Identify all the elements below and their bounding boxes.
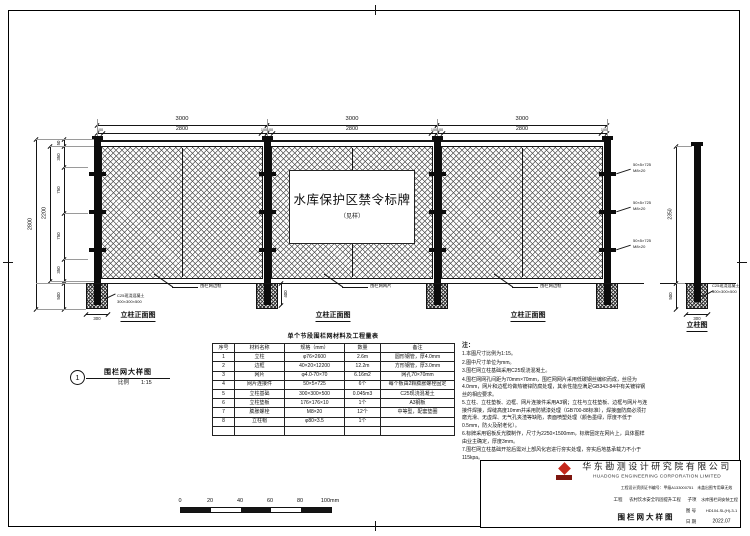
connector-tab xyxy=(599,248,616,252)
subitem-label: 子项 xyxy=(688,497,697,502)
scale-bar-label: 20 xyxy=(207,499,213,505)
table-cell: 40×20×12200 xyxy=(285,362,345,371)
fence-post xyxy=(94,138,101,305)
table-cell: 6个 xyxy=(345,380,381,389)
date-label: 日 期 xyxy=(686,520,696,525)
table-header-cell: 材料名称 xyxy=(235,344,285,353)
table-cell xyxy=(381,426,455,435)
scale-bar-segment xyxy=(211,508,241,512)
post-cap xyxy=(432,136,443,140)
connector-tab xyxy=(89,248,106,252)
table-row: 8立柱帽φ80×3.51个 xyxy=(213,417,455,426)
dim-foundation xyxy=(64,283,65,309)
table-row: 6立柱垫板176×176×101个A3钢板 xyxy=(213,399,455,408)
table-cell xyxy=(235,426,285,435)
materials-table-grid: 序号材料名称规格（mm）数量备注1立柱φ76×26002.6m圆形钢管，厚4.0… xyxy=(212,343,455,436)
graphic-scale-bar: 020406080100mm xyxy=(170,497,350,517)
sign-title: 水库保护区禁令标牌 xyxy=(293,194,410,207)
table-cell xyxy=(285,426,345,435)
table-cell: 1个 xyxy=(345,399,381,408)
company-logo-band xyxy=(556,475,572,480)
centering-mark-left xyxy=(3,262,13,263)
table-row: 7膨胀螺栓M8×2012个中等型，配套垫圈 xyxy=(213,408,455,417)
connector-callout-line2: M8×20 xyxy=(633,207,645,211)
scale-bar-segment xyxy=(181,508,211,512)
dim-span-3000: 3000 xyxy=(516,117,529,123)
dim-foundation-300: 300 xyxy=(93,317,100,321)
drawing-no-value: HD104-SL(H)-3-1 xyxy=(706,509,737,513)
single-post xyxy=(694,145,701,302)
table-cell: 网片连接件 xyxy=(235,380,285,389)
table-cell: 膨胀螺栓 xyxy=(235,408,285,417)
table-cell: 4 xyxy=(213,380,235,389)
post-front-view-label: 立柱正面图 xyxy=(316,312,351,322)
scale-bar-segment xyxy=(271,508,301,512)
single-foundation-callout-line2: 300×300×500 xyxy=(712,290,737,294)
dim-panel-2800: 2800 xyxy=(176,127,188,133)
scale-bar-segment xyxy=(241,508,271,512)
table-cell: A3钢板 xyxy=(381,399,455,408)
scale-bar-segment xyxy=(301,508,331,512)
connector-tab xyxy=(599,210,616,214)
table-cell: 5 xyxy=(213,389,235,398)
dim-single-height xyxy=(676,146,677,283)
table-row: 1立柱φ76×26002.6m圆形钢管，厚4.0mm xyxy=(213,353,455,362)
witness-line xyxy=(676,283,685,284)
table-cell: C25现浇混凝土 xyxy=(381,389,455,398)
callout-leader xyxy=(172,287,198,288)
dim-height-2200: 2200 xyxy=(42,207,48,219)
connector-tab xyxy=(429,248,446,252)
dim-panel-2800: 2800 xyxy=(346,127,358,133)
table-cell: 网片 xyxy=(235,371,285,380)
dim-single-500: 500 xyxy=(669,292,673,299)
witness-line xyxy=(676,146,692,147)
centering-mark-top xyxy=(375,5,376,15)
dim-span-3000: 3000 xyxy=(346,117,359,123)
table-cell: 边框 xyxy=(235,362,285,371)
project-label: 工程 xyxy=(614,497,623,502)
table-cell: 1个 xyxy=(345,417,381,426)
post-cap xyxy=(602,136,613,140)
table-row xyxy=(213,426,455,435)
foundation-callout-line1: C25现浇混凝土 xyxy=(117,294,144,298)
table-cell: 7 xyxy=(213,408,235,417)
connector-tab xyxy=(89,210,106,214)
connector-tab xyxy=(599,172,616,176)
fence-post xyxy=(434,138,441,305)
witness-line xyxy=(50,146,94,147)
table-cell: 立柱帽 xyxy=(235,417,285,426)
centering-mark-bottom xyxy=(375,521,376,531)
title-block-drawing-title: 围栏网大样图 xyxy=(618,513,675,521)
table-header-cell: 数量 xyxy=(345,344,381,353)
note-item: 3.围栏网立柱基础采用C25现浇混凝土。 xyxy=(462,368,648,376)
detail-ref-scale-value: 1:15 xyxy=(141,381,152,387)
connector-tab xyxy=(259,172,276,176)
table-cell: 50×5×725 xyxy=(285,380,345,389)
fence-post xyxy=(264,138,271,305)
table-cell: 每个板由2颗膨胀螺栓固定 xyxy=(381,380,455,389)
table-cell: 立柱 xyxy=(235,353,285,362)
dim-line-panel xyxy=(437,133,607,134)
table-cell: 立柱基础 xyxy=(235,389,285,398)
dim-line-mesh xyxy=(50,146,51,281)
dim-embed xyxy=(281,283,282,305)
table-cell: M8×20 xyxy=(285,408,345,417)
dim-segment: 50 xyxy=(57,140,61,145)
table-cell xyxy=(381,417,455,426)
table-cell: φ4.0-70×70 xyxy=(285,371,345,380)
table-cell: 2 xyxy=(213,362,235,371)
table-row: 2边框40×20×1220012.2m方形钢管，厚3.0mm xyxy=(213,362,455,371)
callout-leader xyxy=(342,287,368,288)
post-front-view-label: 立柱正面图 xyxy=(511,312,546,322)
table-cell xyxy=(345,426,381,435)
materials-table: 序号材料名称规格（mm）数量备注1立柱φ76×26002.6m圆形钢管，厚4.0… xyxy=(212,343,455,436)
table-header-cell: 规格（mm） xyxy=(285,344,345,353)
table-cell: 12个 xyxy=(345,408,381,417)
connector-tab xyxy=(429,172,446,176)
dim-embed-400: 400 xyxy=(283,290,287,297)
scale-bar-label: 60 xyxy=(267,499,273,505)
table-cell: 6 xyxy=(213,399,235,408)
connector-callout-line1: 50×5×725 xyxy=(633,163,651,167)
panel-center-divider xyxy=(522,148,523,277)
table-cell: 立柱垫板 xyxy=(235,399,285,408)
ground-line xyxy=(52,283,644,284)
note-item: 4.围栏网网孔间距为70mm×70mm，围栏网网片采用低碳钢丝编织而成，丝径为4… xyxy=(462,377,648,400)
dim-line-panel xyxy=(267,133,437,134)
table-cell: 8 xyxy=(213,417,235,426)
single-post-view-label: 立柱图 xyxy=(687,322,708,332)
table-cell: 0.045m3 xyxy=(345,389,381,398)
scale-bar-label: 40 xyxy=(237,499,243,505)
post-front-view-label: 立柱正面图 xyxy=(121,312,156,322)
centering-mark-right xyxy=(737,262,747,263)
table-cell: 12.2m xyxy=(345,362,381,371)
witness-line xyxy=(36,139,94,140)
connector-callout-line2: M8×20 xyxy=(633,245,645,249)
dim-foundation-500: 500 xyxy=(57,292,61,299)
dim-segment: 350 xyxy=(57,153,61,160)
connector-tab xyxy=(89,172,106,176)
table-cell: 6.16m2 xyxy=(345,371,381,380)
detail-ref-bubble: 1 xyxy=(70,370,85,385)
table-row: 3网片φ4.0-70×706.16m2网孔70×70mm xyxy=(213,371,455,380)
foundation-callout-line2: 300×300×500 xyxy=(117,300,142,304)
witness-line xyxy=(36,309,86,310)
connector-callout-line2: M8×20 xyxy=(633,169,645,173)
table-row: 4网片连接件50×5×7256个每个板由2颗膨胀螺栓固定 xyxy=(213,380,455,389)
scale-bar-label: 100mm xyxy=(321,499,339,505)
dim-segment: 350 xyxy=(57,266,61,273)
single-foundation-callout-line1: C25现浇混凝土 xyxy=(712,284,739,288)
dim-line-panel xyxy=(97,133,267,134)
panel-center-divider xyxy=(182,148,183,277)
connector-tab xyxy=(259,210,276,214)
connector-tab xyxy=(259,248,276,252)
subitem-name: 水库围栏网安装工程 xyxy=(701,498,738,502)
table-cell: 3 xyxy=(213,371,235,380)
table-cell: 2.6m xyxy=(345,353,381,362)
detail-ref-line xyxy=(86,378,170,379)
note-item: 1.本图尺寸比例为1:15。 xyxy=(462,351,648,359)
table-cell xyxy=(213,426,235,435)
table-cell: 176×176×10 xyxy=(285,399,345,408)
table-cell: 300×300×500 xyxy=(285,389,345,398)
project-name: 农村饮水安全巩固提升工程 xyxy=(629,498,681,502)
sign-subtitle: （见样） xyxy=(340,214,364,220)
notes-list: 1.本图尺寸比例为1:15。2.图中尺寸单位为mm。3.围栏网立柱基础采用C25… xyxy=(462,351,648,463)
table-cell: φ76×2600 xyxy=(285,353,345,362)
table-header-row: 序号材料名称规格（mm）数量备注 xyxy=(213,344,455,353)
scale-bar-label: 0 xyxy=(178,499,181,505)
drawing-no-label: 图 号 xyxy=(686,509,696,514)
witness-line xyxy=(64,259,88,260)
sign-board: 水库保护区禁令标牌 （见样） xyxy=(289,170,415,244)
table-cell: 1 xyxy=(213,353,235,362)
date-value: 2022.07 xyxy=(712,520,730,525)
dim-segment: 750 xyxy=(57,186,61,193)
fence-post xyxy=(604,138,611,305)
table-cell: 圆形钢管，厚4.0mm xyxy=(381,353,455,362)
table-cell: 网孔70×70mm xyxy=(381,371,455,380)
single-post-cap xyxy=(691,142,703,146)
dim-single-2350: 2350 xyxy=(669,208,674,219)
witness-line xyxy=(64,213,88,214)
table-header-cell: 序号 xyxy=(213,344,235,353)
table-cell: 方形钢管，厚3.0mm xyxy=(381,362,455,371)
detail-ref-title: 围栏网大样图 xyxy=(104,369,152,376)
fence-top-rail xyxy=(97,140,607,142)
scale-bar xyxy=(180,507,332,513)
title-block-qualification: 工程设计资质证书编号：甲级A133000751 未盖出图专用章无效 xyxy=(621,486,733,490)
connector-tab xyxy=(429,210,446,214)
table-cell: φ80×3.5 xyxy=(285,417,345,426)
detail-ref-scale-label: 比例 xyxy=(118,381,129,387)
scale-bar-label: 80 xyxy=(297,499,303,505)
materials-table-title: 单个节段围栏网材料及工程量表 xyxy=(287,334,378,340)
dim-segment: 750 xyxy=(57,232,61,239)
table-header-cell: 备注 xyxy=(381,344,455,353)
title-block-company-cn: 华东勘测设计研究院有限公司 xyxy=(582,463,732,472)
dim-single-foundation xyxy=(676,283,677,309)
notes-title: 注： xyxy=(462,343,474,349)
post-cap xyxy=(262,136,273,140)
table-cell: 中等型，配套垫圈 xyxy=(381,408,455,417)
note-item: 6.标牌采用铝板反光膜制作，尺寸为2250×1500mm，标牌固定在网片上，具体… xyxy=(462,431,648,446)
witness-line xyxy=(64,167,88,168)
connector-callout-line1: 50×5×725 xyxy=(633,201,651,205)
dim-single-300: 300 xyxy=(693,317,700,321)
callout-leader xyxy=(512,287,538,288)
dim-height-2800: 2800 xyxy=(28,218,34,230)
detail-ref-number: 1 xyxy=(75,374,79,382)
dim-span-3000: 3000 xyxy=(176,117,189,123)
witness-line xyxy=(50,281,94,282)
title-block-company-en: HUADONG ENGINEERING CORPORATION LIMITED xyxy=(593,475,721,480)
dim-panel-2800: 2800 xyxy=(516,127,528,133)
drawing-sheet: 水库保护区禁令标牌 （见样） 1 围栏网大样图 比例 1:15 单个节段围栏网材… xyxy=(0,0,750,536)
note-item: 2.图中尺寸单位为mm。 xyxy=(462,360,648,368)
note-item: 5.立柱、立柱垫板、边框、网片连接件采用A3钢；立柱与立柱垫板、边框与网片与连接… xyxy=(462,400,648,430)
table-row: 5立柱基础300×300×5000.045m3C25现浇混凝土 xyxy=(213,389,455,398)
witness-line xyxy=(36,283,86,284)
connector-callout-line1: 50×5×725 xyxy=(633,239,651,243)
